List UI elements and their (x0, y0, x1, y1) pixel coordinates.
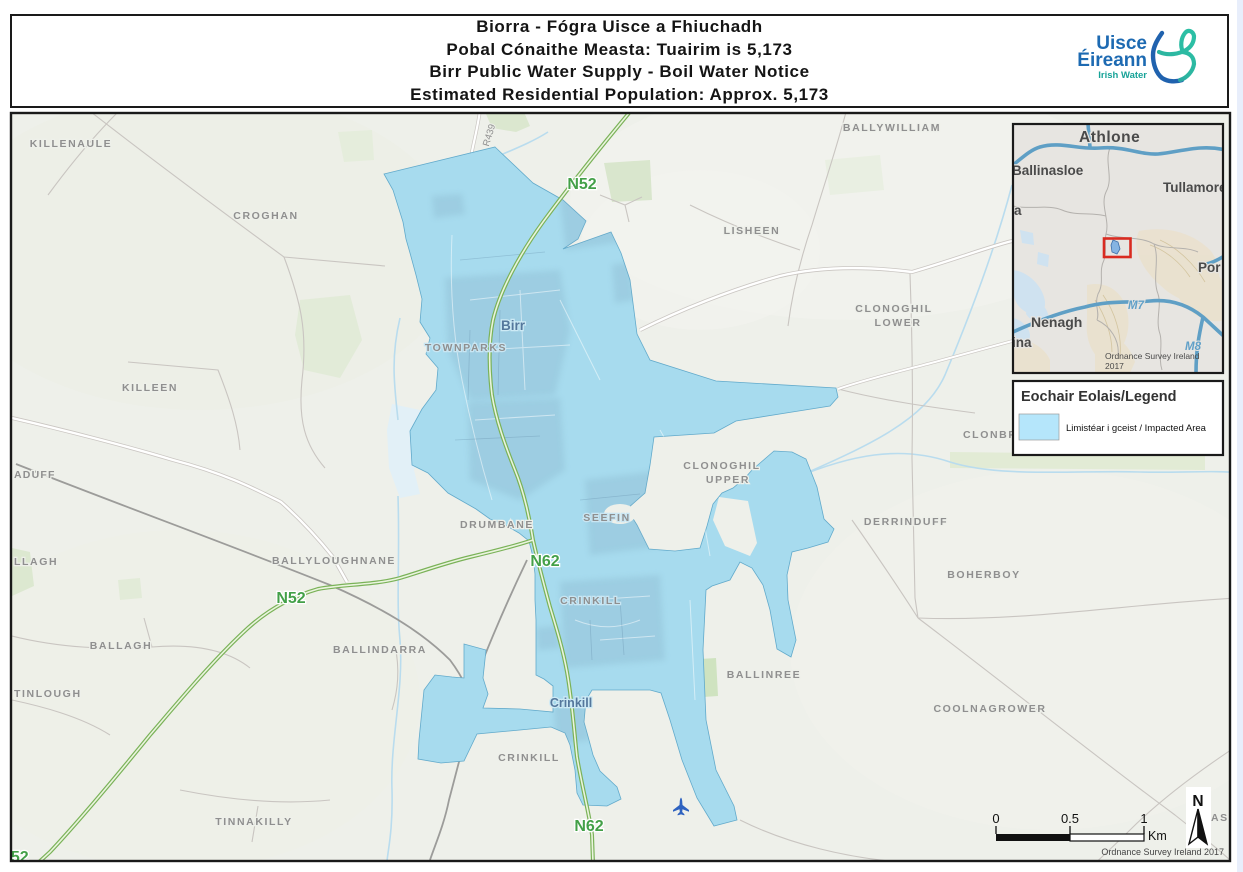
svg-text:CRINKILL: CRINKILL (560, 595, 622, 607)
svg-text:LLAGH: LLAGH (14, 556, 58, 568)
svg-text:TINLOUGH: TINLOUGH (14, 688, 82, 700)
svg-text:Ordnance Survey Ireland 2017: Ordnance Survey Ireland 2017 (1101, 847, 1224, 857)
svg-text:Crinkill: Crinkill (550, 696, 592, 710)
svg-text:N52: N52 (567, 176, 596, 193)
svg-text:Ballinasloe: Ballinasloe (1012, 163, 1084, 178)
svg-text:ADUFF: ADUFF (14, 469, 56, 481)
svg-text:LISHEEN: LISHEEN (724, 225, 781, 237)
svg-text:DERRINDUFF: DERRINDUFF (864, 516, 948, 528)
svg-text:TINNAKILLY: TINNAKILLY (215, 816, 292, 828)
svg-text:a: a (1014, 203, 1022, 218)
svg-text:Tullamore: Tullamore (1163, 180, 1227, 195)
svg-text:N52: N52 (0, 849, 29, 866)
svg-text:CLONOGHIL: CLONOGHIL (683, 460, 760, 472)
svg-text:Birr: Birr (501, 318, 526, 333)
svg-text:CLONOGHIL: CLONOGHIL (855, 303, 932, 315)
svg-text:UPPER: UPPER (706, 474, 750, 486)
svg-text:N: N (1192, 793, 1203, 810)
svg-text:TOWNPARKS: TOWNPARKS (425, 342, 507, 354)
svg-text:Km: Km (1148, 829, 1167, 843)
svg-text:N62: N62 (574, 818, 603, 835)
svg-text:BALLINDARRA: BALLINDARRA (333, 644, 427, 656)
svg-text:LOWER: LOWER (874, 317, 921, 329)
svg-text:KILLENAULE: KILLENAULE (30, 138, 113, 150)
svg-text:N62: N62 (530, 553, 559, 570)
svg-text:COOLNAGROWER: COOLNAGROWER (933, 703, 1046, 715)
svg-text:BALLAGH: BALLAGH (90, 640, 153, 652)
svg-text:DRUMBANE: DRUMBANE (460, 519, 534, 531)
svg-text:1: 1 (1140, 811, 1147, 826)
svg-text:BALLYLOUGHNANE: BALLYLOUGHNANE (272, 555, 396, 567)
svg-text:AS: AS (1211, 812, 1229, 824)
svg-text:0: 0 (992, 811, 999, 826)
svg-text:ina: ina (1012, 335, 1032, 350)
svg-text:Irish Water: Irish Water (1098, 70, 1147, 81)
svg-text:BALLYWILLIAM: BALLYWILLIAM (843, 122, 941, 134)
svg-text:SEEFIN: SEEFIN (583, 512, 631, 524)
svg-text:Nenagh: Nenagh (1031, 314, 1082, 330)
svg-text:BOHERBOY: BOHERBOY (947, 569, 1020, 581)
svg-text:CRINKILL: CRINKILL (498, 752, 560, 764)
svg-text:0.5: 0.5 (1061, 811, 1079, 826)
svg-text:Éireann: Éireann (1077, 49, 1147, 71)
svg-text:N52: N52 (276, 590, 305, 607)
svg-text:Por: Por (1198, 260, 1221, 275)
svg-text:CROGHAN: CROGHAN (233, 210, 298, 222)
svg-text:BALLINREE: BALLINREE (727, 669, 801, 681)
svg-text:Eochair Eolais/Legend: Eochair Eolais/Legend (1021, 389, 1177, 405)
svg-text:Ordnance Survey Ireland: Ordnance Survey Ireland (1105, 351, 1200, 361)
svg-text:2017: 2017 (1105, 361, 1124, 371)
svg-text:Limistéar i gceist / Impacted: Limistéar i gceist / Impacted Area (1066, 423, 1207, 434)
svg-text:M7: M7 (1128, 300, 1145, 312)
svg-text:Athlone: Athlone (1079, 129, 1140, 146)
svg-text:KILLEEN: KILLEEN (122, 382, 178, 394)
